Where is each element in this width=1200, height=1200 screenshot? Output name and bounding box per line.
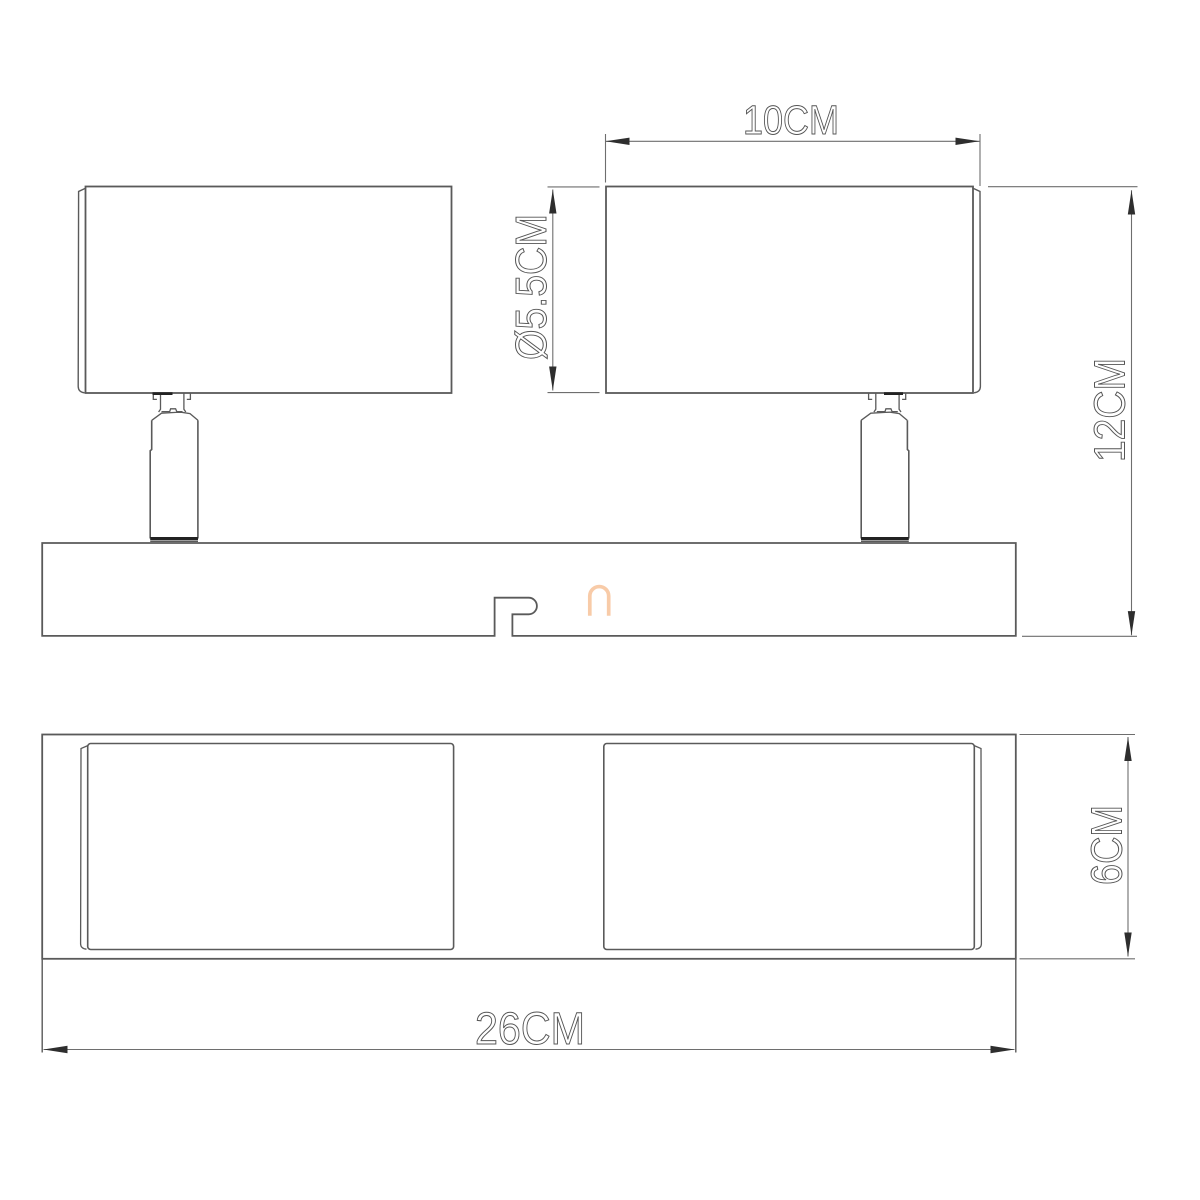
svg-text:26CM: 26CM	[475, 1003, 585, 1054]
svg-text:Ø5.5CM: Ø5.5CM	[507, 214, 556, 360]
svg-text:10CM: 10CM	[743, 97, 839, 143]
svg-text:12CM: 12CM	[1086, 358, 1135, 462]
svg-text:6CM: 6CM	[1083, 805, 1132, 885]
